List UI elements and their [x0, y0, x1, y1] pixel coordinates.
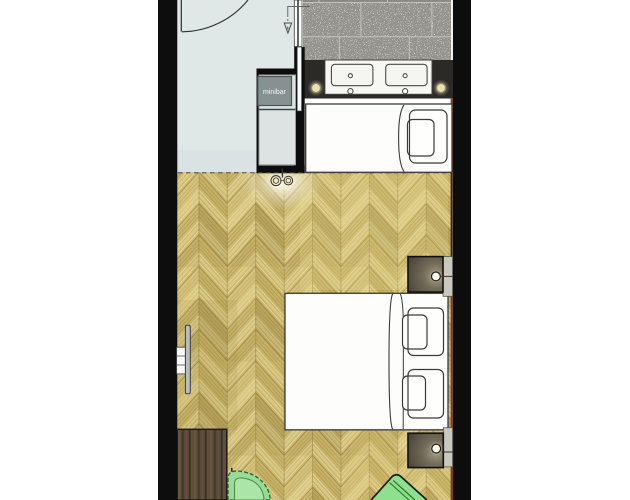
svg-text:minibar: minibar — [263, 89, 287, 96]
